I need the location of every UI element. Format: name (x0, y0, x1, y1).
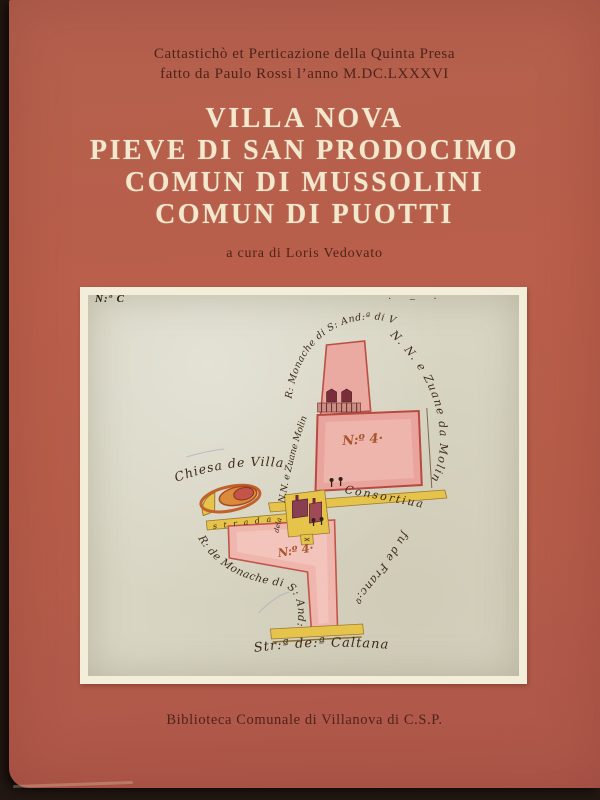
header-text: Cattastichò et Perticazione della Quinta… (9, 44, 600, 84)
antique-map-drawing: N:º 4· N:º 4· Chiesa de Villa Noua R: Mo… (88, 295, 519, 676)
map-paper: N:º C · – · (88, 295, 519, 676)
title-line: COMUN DI MUSSOLINI (9, 167, 600, 199)
publisher-line: Biblioteca Comunale di Villanova di C.S.… (9, 712, 600, 729)
map-label-parcel-upper: N:º 4· (341, 431, 384, 449)
title-line: VILLA NOVA (9, 103, 600, 135)
book-cover: Cattastichò et Perticazione della Quinta… (9, 0, 600, 788)
map-label-fu-de-franco: fu de Franc:º (350, 529, 412, 607)
editor-credit: a cura di Loris Vedovato (9, 246, 600, 262)
header-line-1: Cattastichò et Perticazione della Quinta… (9, 44, 600, 64)
church-drawing (198, 481, 262, 517)
map-label-caltana: Str:ª de:ª Caltana (253, 636, 390, 656)
book-title: VILLA NOVA PIEVE DI SAN PRODOCIMO COMUN … (9, 103, 600, 231)
svg-text:fu de Franc:º: fu de Franc:º (350, 529, 412, 607)
title-line: PIEVE DI SAN PRODOCIMO (9, 135, 600, 167)
svg-text:Str:ª de:ª Caltana: Str:ª de:ª Caltana (253, 636, 390, 656)
title-line: COMUN DI PUOTTI (9, 199, 600, 231)
header-line-2: fatto da Paulo Rossi l’anno M.DC.LXXXVI (9, 64, 600, 84)
map-photo-frame: N:º C · – · (80, 287, 527, 684)
